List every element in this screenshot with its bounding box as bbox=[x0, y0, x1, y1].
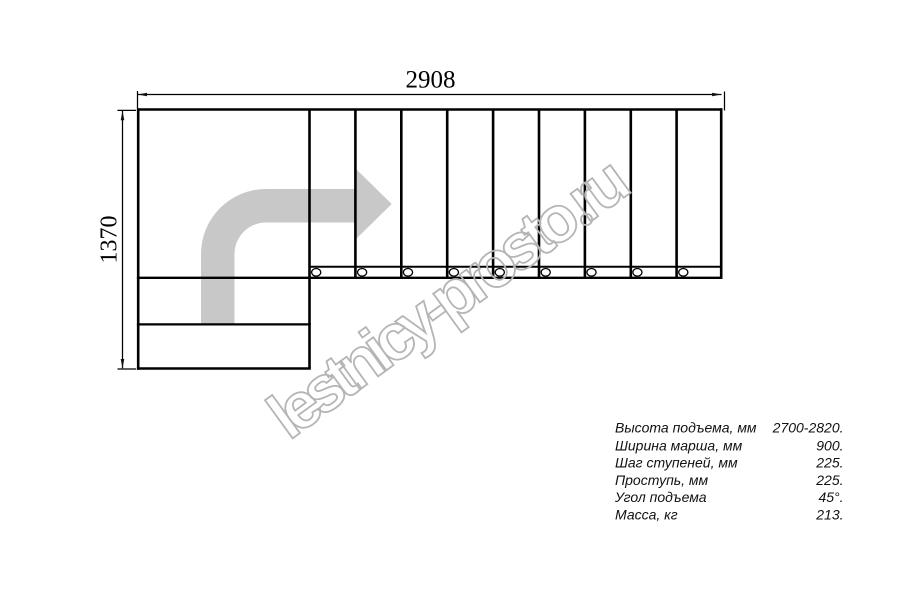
svg-text:Ширина марша, мм: Ширина марша, мм bbox=[615, 438, 743, 454]
svg-text:Проступь, мм: Проступь, мм bbox=[615, 472, 709, 488]
svg-text:Масса, кг: Масса, кг bbox=[615, 507, 678, 523]
svg-text:Угол подъема: Угол подъема bbox=[614, 489, 707, 505]
svg-text:900.: 900. bbox=[816, 438, 843, 454]
svg-text:Шаг ступеней, мм: Шаг ступеней, мм bbox=[615, 455, 738, 471]
svg-text:2908: 2908 bbox=[406, 67, 456, 94]
svg-text:213.: 213. bbox=[815, 507, 843, 523]
svg-text:225.: 225. bbox=[815, 455, 843, 471]
svg-text:2700-2820.: 2700-2820. bbox=[772, 419, 844, 435]
svg-text:Высота подъема, мм: Высота подъема, мм bbox=[615, 419, 757, 435]
svg-text:225.: 225. bbox=[815, 472, 843, 488]
svg-text:1370: 1370 bbox=[97, 216, 123, 264]
svg-text:45°.: 45°. bbox=[818, 489, 843, 505]
